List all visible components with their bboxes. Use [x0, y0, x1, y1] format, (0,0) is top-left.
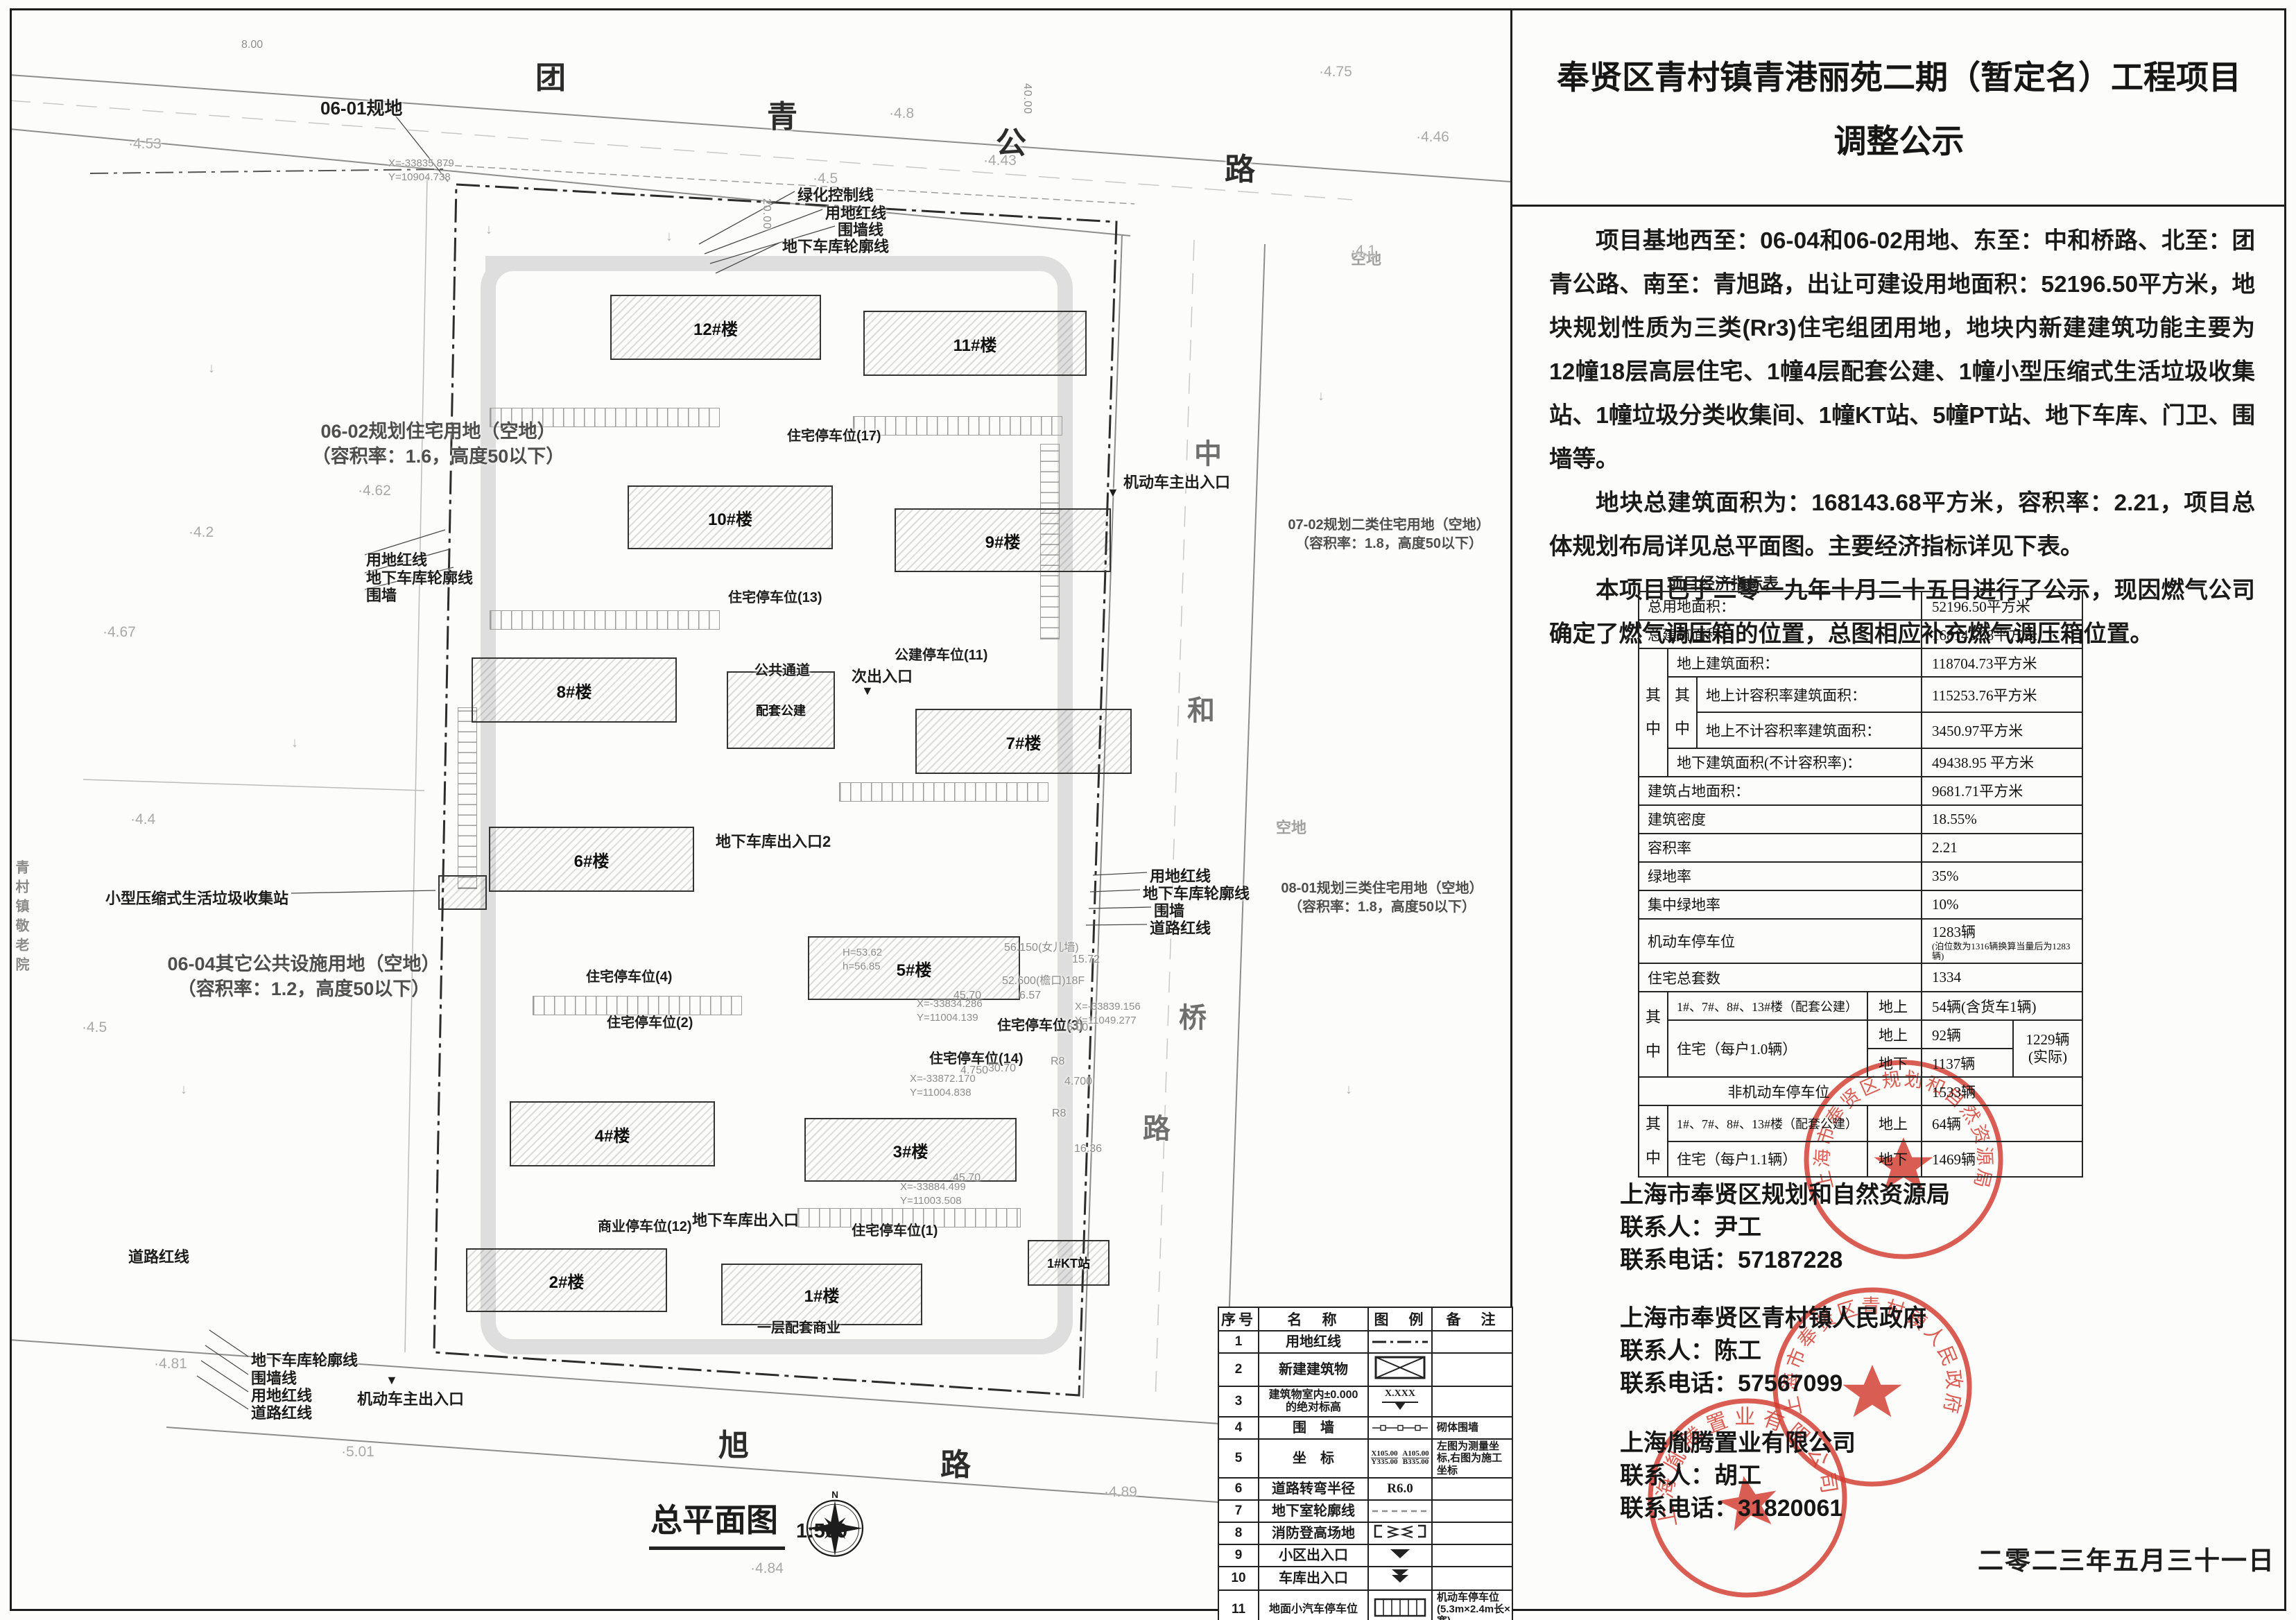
svg-text:N: N — [831, 1490, 838, 1500]
commercial-label: 一层配套商业 — [757, 1316, 840, 1336]
econ-value: 92辆 — [1922, 1020, 2013, 1049]
adjacent-facility-label: 青村镇敬老院 — [11, 860, 31, 976]
econ-value-note: (泊位数为1316辆换算当量后为1283辆) — [1932, 942, 2078, 962]
econ-sublabel: 地下 — [1867, 1141, 1922, 1177]
legend-note — [1432, 1386, 1512, 1417]
econ-value: 10% — [1922, 890, 2082, 919]
spot-elevation: ·4.53 — [128, 136, 162, 153]
econ-value: 54辆(含货车1辆) — [1922, 992, 2082, 1020]
entrance-marker-icon: ▼ — [386, 1373, 398, 1388]
econ-value: 9681.71平方米 — [1922, 777, 2082, 805]
building-label: 6#楼 — [574, 847, 610, 872]
building-label: 7#楼 — [1006, 730, 1042, 754]
econ-value: 3450.97平方米 — [1922, 712, 2082, 748]
econ-sublabel: 地上 — [1867, 1020, 1922, 1049]
legend-note — [1432, 1522, 1512, 1544]
legend-no: 8 — [1218, 1522, 1259, 1544]
legend-no: 6 — [1218, 1478, 1259, 1500]
legend-no: 4 — [1218, 1417, 1259, 1439]
radius-sample: R6.0 — [1368, 1478, 1432, 1500]
legend-name: 地下室轮廓线 — [1259, 1500, 1368, 1522]
econ-value: 18.55% — [1922, 805, 2082, 834]
dimension-text: 45.70 — [953, 990, 981, 1002]
parcel-line: 06-02规划住宅用地（空地） — [300, 419, 577, 444]
legend-no: 11 — [1218, 1590, 1259, 1620]
road-name-char: 桥 — [1179, 995, 1207, 1035]
econ-label: 总用地面积： — [1639, 592, 1922, 620]
entrance-garage-2: 地下车库出入口 — [692, 1208, 799, 1230]
wall-line-icon — [1368, 1417, 1432, 1439]
roof-note: 56.150(女儿墙) — [1004, 938, 1079, 954]
body-paragraph-1: 项目基地西至：06-04和06-02用地、东至：中和桥路、北至：团青公路、南至：… — [1549, 219, 2255, 481]
elevation-mark-icon: X.XXX — [1368, 1386, 1432, 1417]
econ-value: 118704.73平方米 — [1922, 648, 2082, 677]
dimension-text: 4.700 — [1064, 1076, 1092, 1088]
cad-arrow-icon: ↓ — [1345, 1082, 1352, 1098]
callout-road-red: 道路红线 — [128, 1245, 189, 1267]
building-5: 5#楼 — [808, 936, 1020, 1000]
econ-label: 1#、7#、8#、13#楼（配套公建） — [1668, 992, 1867, 1020]
dimension-text: 6.57 — [1019, 990, 1041, 1002]
garage-entrance-icon — [1368, 1567, 1432, 1590]
dimension-text: 20.00 — [760, 198, 772, 230]
page-title-line1: 奉贤区青村镇青港丽苑二期（暂定名）工程项目 — [1512, 46, 2286, 110]
legend-note — [1432, 1353, 1512, 1386]
announcement-sheet: 12#楼 11#楼 10#楼 9#楼 8#楼 7#楼 6#楼 5#楼 4#楼 3… — [0, 0, 2296, 1620]
spot-elevation: ·4.81 — [154, 1356, 187, 1372]
parking-label: 住宅停车位(4) — [586, 965, 672, 985]
cad-arrow-icon: ↓ — [208, 361, 215, 377]
dimension-text: 15.72 — [1072, 954, 1100, 966]
legend-header-name: 名 称 — [1259, 1307, 1368, 1331]
parking-stalls — [458, 707, 477, 889]
spot-elevation: ·5.01 — [341, 1444, 374, 1460]
legend-note: 机动车停车位 (5.3m×2.4m长×宽) — [1432, 1590, 1512, 1620]
legend-no: 2 — [1218, 1353, 1259, 1386]
dashdot-line-icon — [1368, 1331, 1432, 1353]
entrance-marker-icon: ▼ — [861, 684, 874, 698]
contact-block-planning-bureau: 上海市奉贤区规划和自然资源局 联系人：尹工 联系电话：57187228 — [1620, 1179, 1950, 1277]
legend-no: 10 — [1218, 1567, 1259, 1590]
contact-phone: 联系电话：57567099 — [1620, 1368, 1926, 1400]
econ-label: 容积率 — [1639, 834, 1922, 862]
body-paragraph-2: 地块总建筑面积为：168143.68平方米，容积率：2.21，项目总体规划布局详… — [1549, 481, 2255, 569]
entrance-main-top: 机动车主出入口 — [1123, 470, 1230, 492]
parcel-label-0702: 07-02规划二类住宅用地（空地） （容积率：1.8，高度50以下） — [1275, 516, 1503, 553]
callout-garage-outline: 地下车库轮廓线 — [782, 234, 889, 257]
dimension-text: 4.750 — [960, 1065, 988, 1077]
callout-road-red: 道路红线 — [251, 1401, 312, 1423]
parking-label: 公建停车位(11) — [895, 644, 987, 664]
spot-elevation: ·4.84 — [750, 1560, 784, 1577]
building-label: 12#楼 — [693, 316, 738, 340]
building-label: 4#楼 — [595, 1122, 630, 1146]
parcel-line: （容积率：1.2，高度50以下） — [165, 976, 442, 1001]
legend-note — [1432, 1478, 1512, 1500]
econ-value: 35% — [1922, 862, 2082, 890]
legend-note — [1432, 1544, 1512, 1567]
legend-no: 1 — [1218, 1331, 1259, 1353]
road-name-char: 路 — [1225, 144, 1257, 189]
legend-table: 序号 名 称 图 例 备 注 1 用地红线 2 新建建筑物 3 建筑物室内±0.… — [1218, 1307, 1513, 1620]
building-label: 9#楼 — [985, 528, 1021, 553]
roof-note: 52.600(檐口)18F — [1002, 971, 1085, 988]
road-name-char: 旭 — [718, 1420, 750, 1465]
building-10: 10#楼 — [628, 485, 833, 549]
dimension-text: 16.36 — [1074, 1143, 1102, 1155]
legend-name: 新建建筑物 — [1259, 1353, 1368, 1386]
road-name-char: 中 — [1194, 431, 1222, 472]
cad-arrow-icon: ↓ — [1318, 388, 1324, 404]
building-label: 5#楼 — [897, 956, 932, 981]
legend-name: 建筑物室内±0.000 的绝对标高 — [1259, 1386, 1368, 1417]
spot-elevation: ·4.4 — [130, 811, 155, 828]
econ-value-with-note: 1283辆 (泊位数为1316辆换算当量后为1283辆) — [1922, 919, 2082, 964]
econ-label: 非机动车停车位 — [1639, 1077, 1922, 1105]
spot-elevation: ·4.75 — [1319, 64, 1352, 80]
legend-note: 左图为测量坐标,右图为施工坐标 — [1432, 1439, 1512, 1478]
building-kt-station: 1#KT站 — [1028, 1240, 1110, 1286]
econ-label: 地下建筑面积(不计容积率)： — [1668, 748, 1922, 777]
building-2: 2#楼 — [466, 1248, 667, 1312]
contact-person: 联系人：胡工 — [1620, 1460, 1856, 1492]
contact-org: 上海胤腾置业有限公司 — [1620, 1427, 1856, 1460]
spot-elevation: ·4.2 — [189, 524, 214, 541]
building-label: 1#楼 — [804, 1282, 840, 1307]
legend-name: 道路转弯半径 — [1259, 1478, 1368, 1500]
building-8: 8#楼 — [472, 657, 677, 723]
econ-value: 1137辆 — [1922, 1049, 2013, 1077]
road-name-char: 青 — [767, 92, 799, 136]
parcel-label-0604: 06-04其它公共设施用地（空地） （容积率：1.2，高度50以下） — [165, 951, 442, 1002]
building-7: 7#楼 — [915, 709, 1132, 774]
spot-elevation: ·4.8 — [889, 105, 914, 122]
page-title: 奉贤区青村镇青港丽苑二期（暂定名）工程项目 调整公示 — [1512, 46, 2286, 173]
parcel-line: 06-04其它公共设施用地（空地） — [165, 951, 442, 976]
dimension-text: 6.00 — [1067, 1022, 1088, 1034]
waste-station-box — [438, 875, 487, 910]
vacant-label: 空地 — [1276, 816, 1306, 838]
basement-outline-icon — [1368, 1500, 1432, 1522]
econ-label: 住宅（每户1.0辆） — [1668, 1020, 1867, 1077]
parking-stalls — [839, 782, 1048, 802]
legend-name: 地面小汽车停车位 — [1259, 1590, 1368, 1620]
spot-elevation: ·4.5 — [82, 1019, 107, 1036]
legend-name: 坐 标 — [1259, 1439, 1368, 1478]
building-label: 1#KT站 — [1047, 1254, 1090, 1272]
econ-label: 总建筑面积： — [1639, 620, 1922, 648]
parking-label: 住宅停车位(17) — [787, 424, 881, 445]
fire-access-icon — [1368, 1522, 1432, 1544]
legend-no: 3 — [1218, 1386, 1259, 1417]
contact-person: 联系人：尹工 — [1620, 1212, 1950, 1244]
econ-label: 地上不计容积率建筑面积： — [1697, 712, 1922, 748]
econ-sublabel: 地上 — [1867, 1105, 1922, 1141]
legend-note — [1432, 1331, 1512, 1353]
parcel-line: （容积率：1.8，高度50以下） — [1268, 898, 1496, 917]
building-label: 3#楼 — [893, 1138, 929, 1162]
econ-value: 1334 — [1922, 963, 2082, 992]
building-label: 8#楼 — [557, 678, 592, 703]
econ-band-among: 其 中 — [1668, 677, 1697, 748]
cad-arrow-icon: ↓ — [485, 222, 492, 238]
dimension-text: 30.70 — [988, 1062, 1016, 1075]
economic-table-caption: 项目经济指标表 — [1667, 570, 1779, 594]
coord-sample-y: Y335.00 — [1371, 1458, 1397, 1467]
map-title: 总平面图 — [649, 1495, 785, 1550]
coordinate-mark-icon: X105.00Y335.00 A105.00B335.00 — [1368, 1439, 1432, 1478]
entrance-marker-icon: ▼ — [1107, 485, 1119, 500]
parking-label: 商业停车位(12) — [598, 1215, 692, 1235]
block-tag: 06-01规地 — [320, 94, 403, 120]
contact-org: 上海市奉贤区青村镇人民政府 — [1620, 1302, 1926, 1335]
passage-label: 公共通道 — [754, 659, 810, 679]
parking-label: 住宅停车位(1) — [852, 1219, 938, 1239]
callout-wall: 围墙 — [366, 583, 397, 605]
legend-name: 围 墙 — [1259, 1417, 1368, 1439]
contact-org: 上海市奉贤区规划和自然资源局 — [1620, 1179, 1950, 1212]
north-compass-icon: N — [800, 1488, 870, 1565]
legend-note — [1432, 1500, 1512, 1522]
building-4: 4#楼 — [510, 1101, 715, 1166]
econ-value: 52196.50平方米 — [1922, 592, 2082, 620]
econ-value: 49438.95 平方米 — [1922, 748, 2082, 777]
econ-label: 绿地率 — [1639, 862, 1922, 890]
dimension-text: R8 — [1052, 1108, 1066, 1120]
parcel-line: （容积率：1.6，高度50以下） — [300, 444, 577, 469]
econ-label: 机动车停车位 — [1639, 919, 1922, 964]
announcement-date: 二零二三年五月三十一日 — [1978, 1540, 2275, 1577]
econ-label: 建筑占地面积： — [1639, 777, 1922, 805]
spot-elevation: ·4.43 — [983, 153, 1017, 169]
sp ot-elevation: ·4.1 — [1351, 243, 1376, 259]
dimension-text: 45.70 — [953, 1172, 981, 1184]
cad-arrow-icon: ↓ — [291, 735, 298, 751]
spot-elevation: ·4.62 — [358, 483, 391, 499]
legend-header-symbol: 图 例 — [1368, 1307, 1432, 1331]
parking-label: 住宅停车位(2) — [607, 1011, 693, 1031]
building-9: 9#楼 — [895, 508, 1111, 572]
economic-indicator-table: 总用地面积：52196.50平方米 总建筑面积：168143.68平方米 其 中… — [1638, 591, 2083, 1178]
parcel-label-0801: 08-01规划三类住宅用地（空地） （容积率：1.8，高度50以下） — [1268, 879, 1496, 917]
econ-value: 168143.68平方米 — [1922, 620, 2082, 648]
building-label: 配套公建 — [756, 701, 806, 719]
community-entrance-icon — [1368, 1544, 1432, 1567]
dimension-text: 40.00 — [1021, 83, 1033, 114]
contact-block-town-government: 上海市奉贤区青村镇人民政府 联系人：陈工 联系电话：57567099 — [1620, 1302, 1926, 1400]
econ-band-among: 其 中 — [1639, 992, 1668, 1077]
road-name-char: 团 — [535, 53, 567, 97]
econ-value: 1533辆 — [1922, 1077, 2082, 1105]
econ-value: 64辆 — [1922, 1105, 2082, 1141]
legend-note — [1432, 1567, 1512, 1590]
title-rule — [1512, 205, 2286, 207]
road-name-char: 路 — [1143, 1106, 1171, 1146]
coord-sample-b: B335.00 — [1402, 1458, 1428, 1467]
econ-sublabel: 地下 — [1867, 1049, 1922, 1077]
road-name-char: 路 — [940, 1440, 972, 1484]
parking-stalls — [853, 416, 1062, 436]
legend-no: 5 — [1218, 1439, 1259, 1478]
legend-header-note: 备 注 — [1432, 1307, 1512, 1331]
road-name-char: 和 — [1187, 688, 1215, 728]
building-11: 11#楼 — [863, 311, 1087, 376]
econ-actual-total: 1229辆 (实际) — [2013, 1020, 2082, 1077]
spot-elevation: ·4.67 — [103, 624, 136, 641]
legend-no: 7 — [1218, 1500, 1259, 1522]
building-3: 3#楼 — [804, 1118, 1017, 1182]
contact-block-developer: 上海胤腾置业有限公司 联系人：胡工 联系电话：31820061 — [1620, 1427, 1856, 1525]
parcel-label-0602: 06-02规划住宅用地（空地） （容积率：1.6，高度50以下） — [300, 419, 577, 469]
legend-name: 小区出入口 — [1259, 1544, 1368, 1567]
econ-sublabel: 地上 — [1867, 992, 1922, 1020]
surface-parking-icon — [1368, 1590, 1432, 1620]
econ-label: 建筑密度 — [1639, 805, 1922, 834]
econ-value: 115253.76平方米 — [1922, 677, 2082, 712]
building-label: 2#楼 — [549, 1268, 585, 1293]
entrance-main-bottom: 机动车主出入口 — [357, 1387, 464, 1409]
legend-header-no: 序号 — [1218, 1307, 1259, 1331]
parcel-line: 07-02规划二类住宅用地（空地） — [1275, 516, 1503, 535]
econ-label: 住宅总套数 — [1639, 963, 1922, 992]
elevation-sample: X.XXX — [1370, 1389, 1430, 1399]
dimension-text: 8.00 — [241, 39, 263, 51]
contact-phone: 联系电话：57187228 — [1620, 1244, 1950, 1277]
building-12: 12#楼 — [610, 295, 821, 360]
legend-name: 用地红线 — [1259, 1331, 1368, 1353]
spot-elevation: ·4.89 — [1104, 1484, 1137, 1501]
econ-value: 2.21 — [1922, 834, 2082, 862]
legend-note: 砌体围墙 — [1432, 1417, 1512, 1439]
cad-arrow-icon: ↓ — [666, 229, 673, 245]
econ-label: 住宅（每户1.1辆） — [1668, 1141, 1867, 1177]
parcel-line: 08-01规划三类住宅用地（空地） — [1268, 879, 1496, 898]
coordinate-text: X=-33835.879 Y=10904.738 — [388, 157, 454, 184]
building-label: 11#楼 — [953, 331, 997, 356]
contact-phone: 联系电话：31820061 — [1620, 1492, 1856, 1525]
parcel-line: （容积率：1.8，高度50以下） — [1275, 535, 1503, 553]
spot-elevation: ·4.46 — [1416, 129, 1449, 146]
econ-band-among: 其 中 — [1639, 1105, 1668, 1177]
econ-label: 1#、7#、8#、13#楼（配套公建） — [1668, 1105, 1867, 1141]
econ-band-among: 其 中 — [1639, 648, 1668, 777]
econ-label: 集中绿地率 — [1639, 890, 1922, 919]
legend-name: 消防登高场地 — [1259, 1522, 1368, 1544]
econ-label: 地上建筑面积： — [1668, 648, 1922, 677]
econ-value: 1283辆 — [1932, 924, 1976, 940]
econ-value: 1469辆 — [1922, 1141, 2082, 1177]
contact-person: 联系人：陈工 — [1620, 1335, 1926, 1368]
legend-no: 9 — [1218, 1544, 1259, 1567]
econ-label: 地上计容积率建筑面积： — [1697, 677, 1922, 712]
building-6: 6#楼 — [489, 827, 694, 892]
callout-road-red: 道路红线 — [1150, 916, 1211, 938]
building-public: 配套公建 — [727, 671, 835, 749]
dimension-text: R8 — [1051, 1055, 1064, 1068]
page-title-line2: 调整公示 — [1512, 110, 2286, 173]
parking-stalls — [490, 610, 720, 630]
spot-elevation: ·4.5 — [813, 171, 838, 187]
cad-arrow-icon: ↓ — [180, 1082, 187, 1098]
legend-name: 车库出入口 — [1259, 1567, 1368, 1590]
building-label: 10#楼 — [708, 506, 752, 530]
entrance-garage-1: 地下车库出入口2 — [716, 829, 831, 852]
height-note: H=53.62 h=56.85 — [843, 946, 882, 973]
parking-label: 住宅停车位(13) — [728, 586, 822, 606]
new-building-icon — [1368, 1353, 1432, 1386]
callout-waste-station: 小型压缩式生活垃圾收集站 — [105, 886, 288, 908]
